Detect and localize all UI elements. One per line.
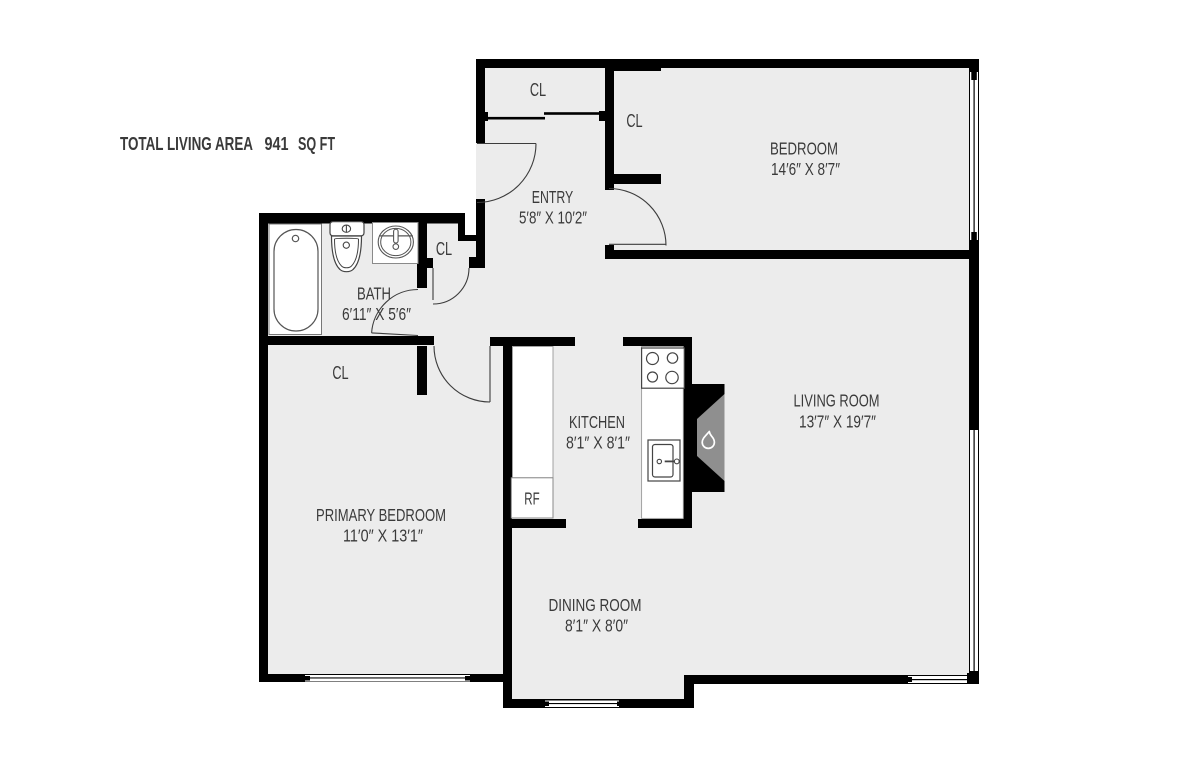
svg-text:CL: CL	[530, 79, 546, 100]
svg-text:CL: CL	[332, 362, 348, 383]
svg-text:CL: CL	[436, 238, 452, 259]
svg-text:BATH: BATH	[357, 284, 391, 304]
svg-text:13′7″ X 19′7″: 13′7″ X 19′7″	[799, 412, 876, 432]
svg-text:LIVING ROOM: LIVING ROOM	[794, 391, 880, 411]
svg-text:941: 941	[265, 134, 289, 154]
svg-text:5′8″ X 10′2″: 5′8″ X 10′2″	[519, 208, 587, 228]
svg-text:TOTAL LIVING AREA: TOTAL LIVING AREA	[120, 134, 253, 154]
svg-text:11′0″ X 13′1″: 11′0″ X 13′1″	[343, 526, 423, 546]
svg-text:KITCHEN: KITCHEN	[569, 412, 625, 432]
svg-text:PRIMARY BEDROOM: PRIMARY BEDROOM	[316, 505, 446, 525]
svg-text:8′1″ X 8′0″: 8′1″ X 8′0″	[565, 616, 628, 636]
svg-text:SQ FT: SQ FT	[298, 134, 335, 154]
svg-text:DINING ROOM: DINING ROOM	[549, 595, 642, 615]
svg-text:6′11″ X 5′6″: 6′11″ X 5′6″	[342, 304, 411, 324]
svg-text:RF: RF	[524, 489, 539, 509]
svg-text:14′6″ X 8′7″: 14′6″ X 8′7″	[771, 159, 840, 179]
svg-text:BEDROOM: BEDROOM	[770, 139, 838, 159]
svg-text:CL: CL	[626, 110, 642, 131]
svg-text:ENTRY: ENTRY	[532, 187, 574, 207]
svg-text:8′1″ X 8′1″: 8′1″ X 8′1″	[566, 433, 630, 453]
